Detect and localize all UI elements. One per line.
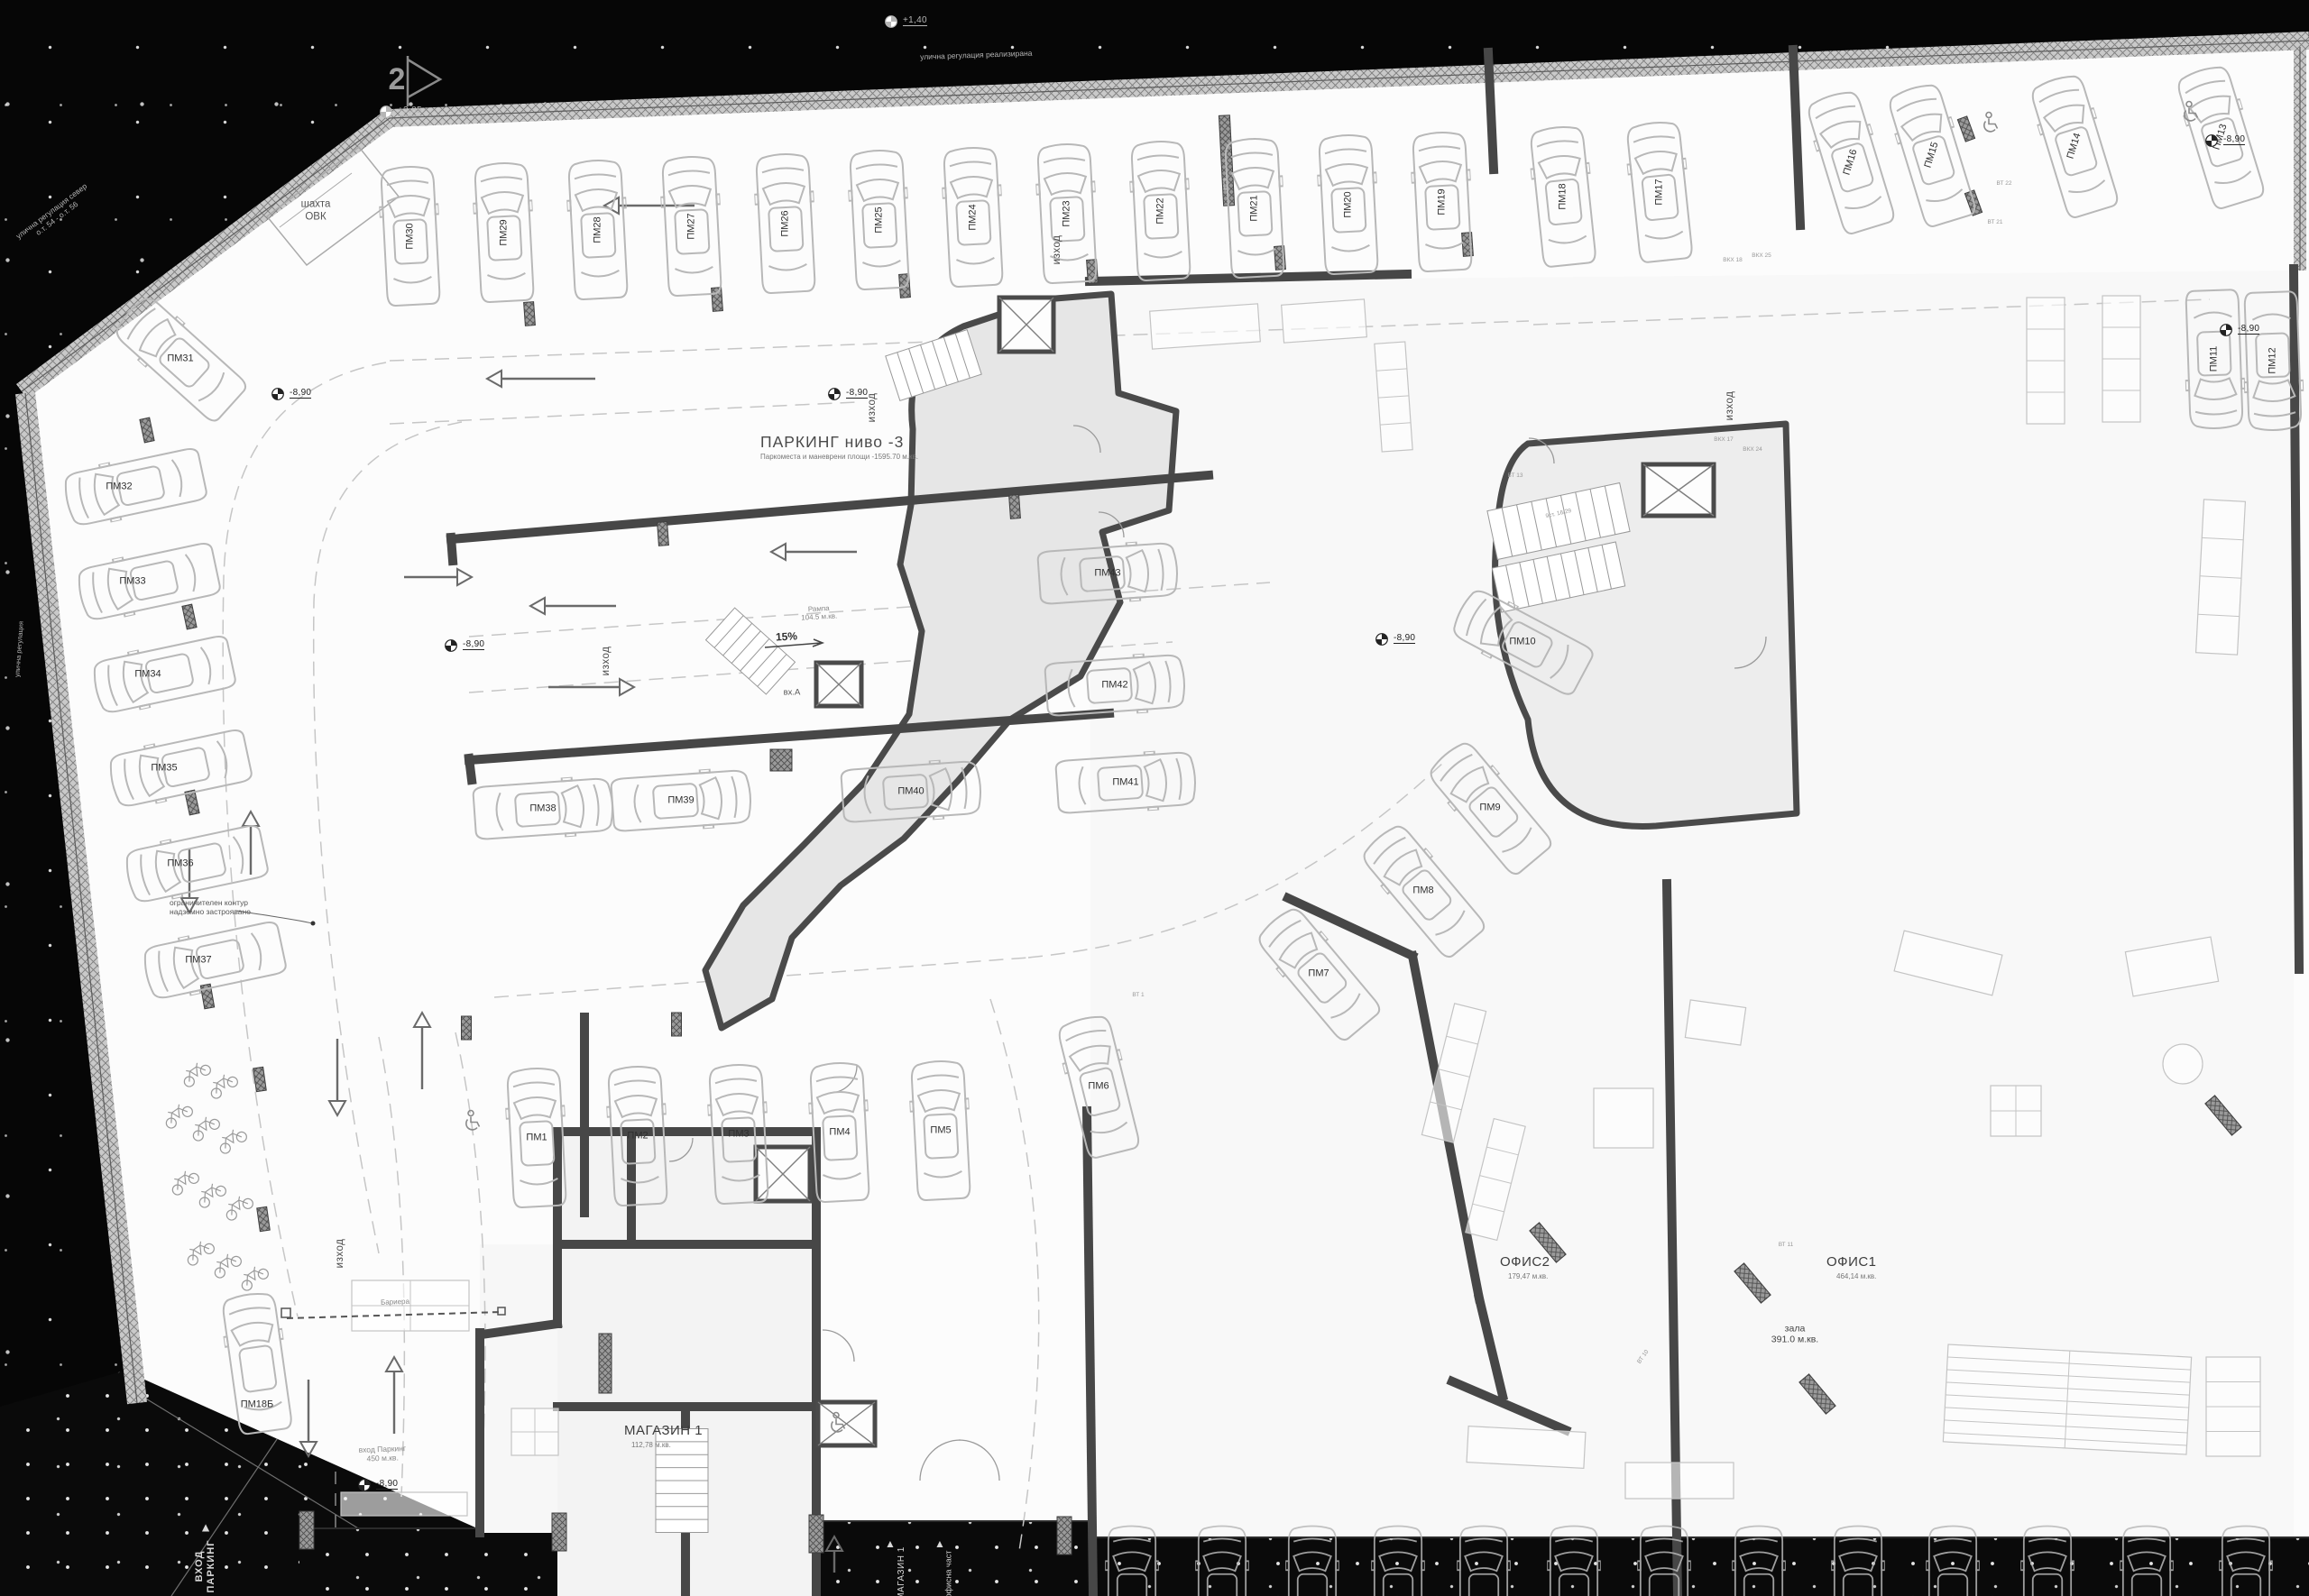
plan-annotation: ВТ 21 [1988,219,2003,226]
parking-spot-label: ПМ18 [1558,183,1569,209]
parking-spot-label: ПМ26 [780,210,792,236]
plan-annotation: Бариера [381,1298,409,1307]
parking-spot-label: ПМ31 [167,353,193,365]
elevation-value: +1,40 [903,15,927,26]
plan-annotation: ВКХ 25 [1752,252,1771,260]
parking-spot-label: ПМ11 [2209,346,2221,372]
plan-annotation: ВТ 11 [1779,1242,1793,1249]
plan-annotation: МАГАЗИН 1 [897,1546,907,1596]
elevation-value: -8,90 [376,1479,398,1490]
parking-spot-label: ПМ28 [593,216,604,243]
plan-annotation: ▲ [199,1520,212,1536]
plan-annotation: ВКХ 24 [1743,446,1762,454]
level-target-icon [884,14,898,29]
parking-spot-label: ПМ23 [1062,200,1073,226]
floor-plan-drawing: ПМ30ПМ29ПМ28ПМ27ПМ26ПМ25ПМ24ПМ23ПМ22ПМ21… [0,0,2309,1596]
level-target-icon [271,387,285,401]
plan-annotation: изход [867,393,879,423]
parking-spot-label: ПМ12 [2268,347,2279,373]
parking-spot-label: ПМ36 [167,858,193,870]
parking-spot-label: ПМ15 [1923,141,1942,170]
plan-annotation: 179,47 м.кв. [1508,1272,1548,1280]
level-target-icon [379,105,393,119]
plan-annotation: ВКХ 17 [1714,436,1734,444]
parking-spot-label: ПМ33 [119,576,145,588]
plan-annotation: ВТ 22 [1997,180,2012,188]
plan-annotation: 15% [776,629,798,643]
level-target-icon [827,387,842,401]
parking-spot-label: ПМ25 [874,206,886,233]
text-annotations-layer: ПМ30ПМ29ПМ28ПМ27ПМ26ПМ25ПМ24ПМ23ПМ22ПМ21… [0,0,2309,1596]
plan-annotation: ВТ 10 [1636,1349,1651,1365]
elevation-value: -8,90 [2238,324,2259,335]
plan-annotation: 112,78 м.кв. [631,1441,671,1449]
parking-spot-label: ПМ16 [1842,148,1861,177]
plan-annotation: улична регулация север о.т. 54 - о.т. 56 [14,181,95,248]
plan-annotation: 464,14 м.кв. [1836,1272,1876,1280]
plan-annotation: изход [601,647,613,676]
plan-annotation: 2 [389,61,406,97]
plan-annotation: улична регулация [14,621,25,678]
parking-spot-label: ПМ8 [1412,885,1433,897]
elevation-marker: -8,90 [834,394,849,413]
parking-spot-label: ПМ22 [1155,197,1167,224]
level-target-icon [1375,632,1389,647]
level-target-icon [444,638,458,653]
elevation-marker: -8,90 [278,394,292,413]
parking-spot-label: ПМ18Б [241,1399,274,1411]
parking-spot-label: ПМ2 [627,1131,648,1142]
parking-spot-label: ПМ19 [1437,188,1449,215]
plan-annotation: Паркоместа и маневрени площи -1595.70 м.… [760,453,918,461]
elevation-value: -8,90 [1394,633,1415,644]
parking-spot-label: ПМ4 [829,1127,850,1139]
plan-annotation: ▲ [934,1537,945,1550]
parking-spot-label: ПМ17 [1654,179,1666,205]
elevation-value: +3,85 [398,105,422,116]
parking-spot-label: ПМ21 [1249,195,1261,221]
plan-annotation: МАГАЗИН 1 [624,1423,703,1439]
parking-spot-label: ПМ20 [1343,191,1355,217]
parking-spot-label: ПМ10 [1509,637,1535,648]
parking-spot-label: ПМ1 [526,1133,547,1144]
elevation-marker: -8,90 [451,646,465,665]
elevation-marker: -8,90 [2226,330,2240,349]
plan-annotation: ВТ 1 [1132,992,1144,999]
parking-spot-label: ПМ43 [1094,568,1120,580]
parking-spot-label: ПМ14 [2065,132,2084,161]
elevation-value: -8,90 [290,388,311,399]
plan-annotation: ОФИС2 [1500,1254,1550,1270]
plan-annotation: ВКХ 18 [1723,257,1743,264]
plan-annotation: Рампа 104.5 м.кв. [801,604,838,623]
plan-annotation: ПАРКИНГ ниво -3 [760,433,904,452]
elevation-marker: -8,90 [2212,141,2226,160]
elevation-value: -8,90 [463,639,484,650]
parking-spot-label: ПМ6 [1088,1081,1109,1093]
plan-annotation: ограничителен контур надземно застрояван… [170,898,251,916]
plan-annotation: вход Паркинг 450 м.кв. [358,1444,406,1463]
elevation-value: -8,90 [2223,134,2245,145]
parking-spot-label: ПМ3 [728,1129,749,1141]
elevation-marker: -8,90 [364,1485,379,1504]
parking-spot-label: ПМ27 [686,213,698,239]
plan-annotation: вх.А [784,687,801,697]
parking-spot-label: ПМ24 [968,204,980,230]
plan-annotation: ОФИС1 [1826,1254,1877,1270]
parking-spot-label: ПМ38 [529,803,556,815]
parking-spot-label: ПМ9 [1479,803,1500,814]
elevation-marker: -8,90 [1382,639,1396,658]
plan-annotation: улична регулация реализирана [920,49,1033,61]
plan-annotation: зала 391.0 м.кв. [1771,1324,1818,1346]
elevation-value: -8,90 [846,388,868,399]
plan-annotation: изход [1725,391,1737,421]
parking-spot-label: ПМ42 [1101,680,1127,692]
parking-spot-label: ПМ39 [667,795,694,807]
parking-spot-label: ПМ41 [1112,777,1138,789]
plan-annotation: ВТ 13 [1508,472,1523,480]
elevation-marker: +1,40 [891,22,906,41]
plan-annotation: ВХОД ПАРКИНГ [194,1540,217,1593]
parking-spot-label: ПМ35 [151,763,177,775]
parking-spot-label: ПМ32 [106,482,132,493]
parking-spot-label: ПМ7 [1308,968,1329,980]
level-target-icon [2219,323,2233,337]
level-target-icon [2204,133,2219,148]
parking-spot-label: ПМ5 [930,1125,951,1137]
plan-annotation: офисна част [944,1551,954,1596]
parking-spot-label: ПМ30 [405,223,417,249]
plan-annotation: шахта ОВК [301,198,331,223]
parking-spot-label: ПМ37 [185,955,211,967]
plan-annotation: изход [335,1239,347,1269]
plan-annotation: 9ст. 16/29 [1545,508,1572,520]
plan-annotation: изход [1052,235,1064,265]
elevation-marker: +3,85 [386,112,400,131]
parking-spot-label: ПМ29 [499,219,511,245]
level-target-icon [357,1478,372,1492]
parking-spot-label: ПМ34 [134,669,161,681]
parking-spot-label: ПМ40 [897,786,924,798]
plan-annotation: ▲ [885,1537,896,1550]
